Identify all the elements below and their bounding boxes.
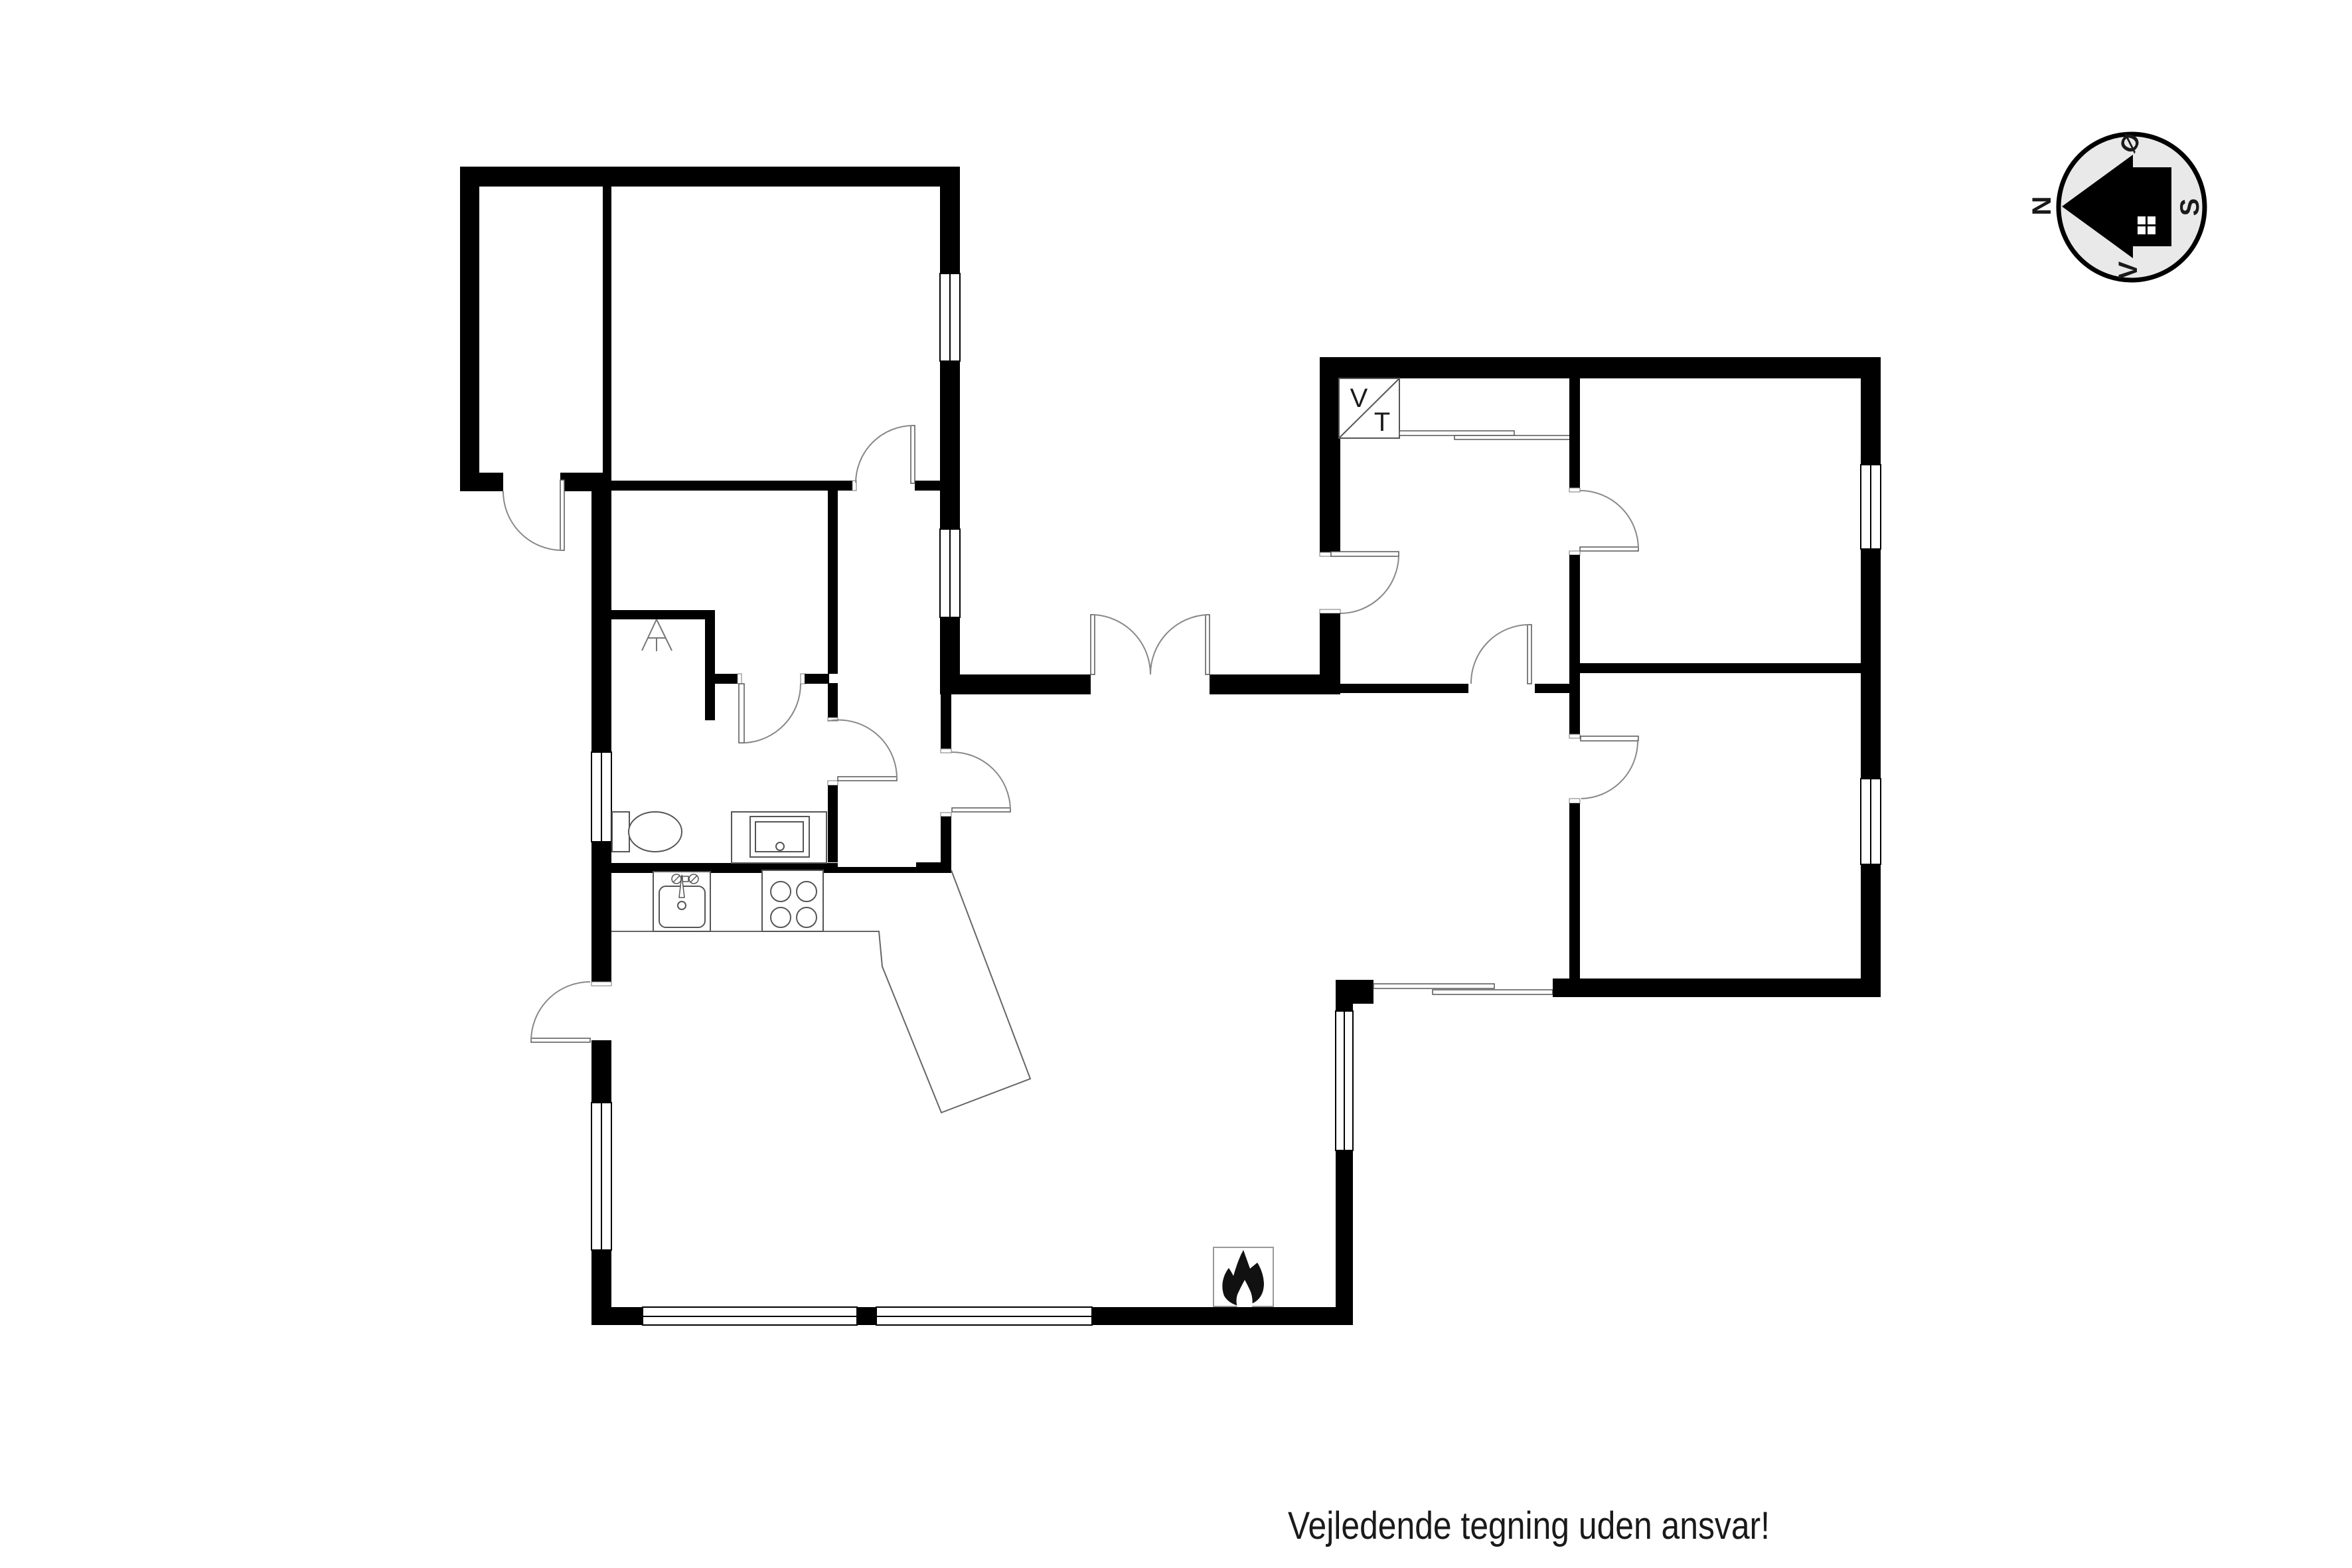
svg-text:Vejledende tegning uden ansvar: Vejledende tegning uden ansvar! bbox=[1288, 1504, 1770, 1547]
svg-text:S: S bbox=[2175, 198, 2205, 216]
svg-text:N: N bbox=[2027, 196, 2057, 216]
svg-text:T: T bbox=[1374, 408, 1390, 437]
svg-text:V: V bbox=[1350, 384, 1368, 413]
svg-text:V: V bbox=[2114, 261, 2143, 279]
